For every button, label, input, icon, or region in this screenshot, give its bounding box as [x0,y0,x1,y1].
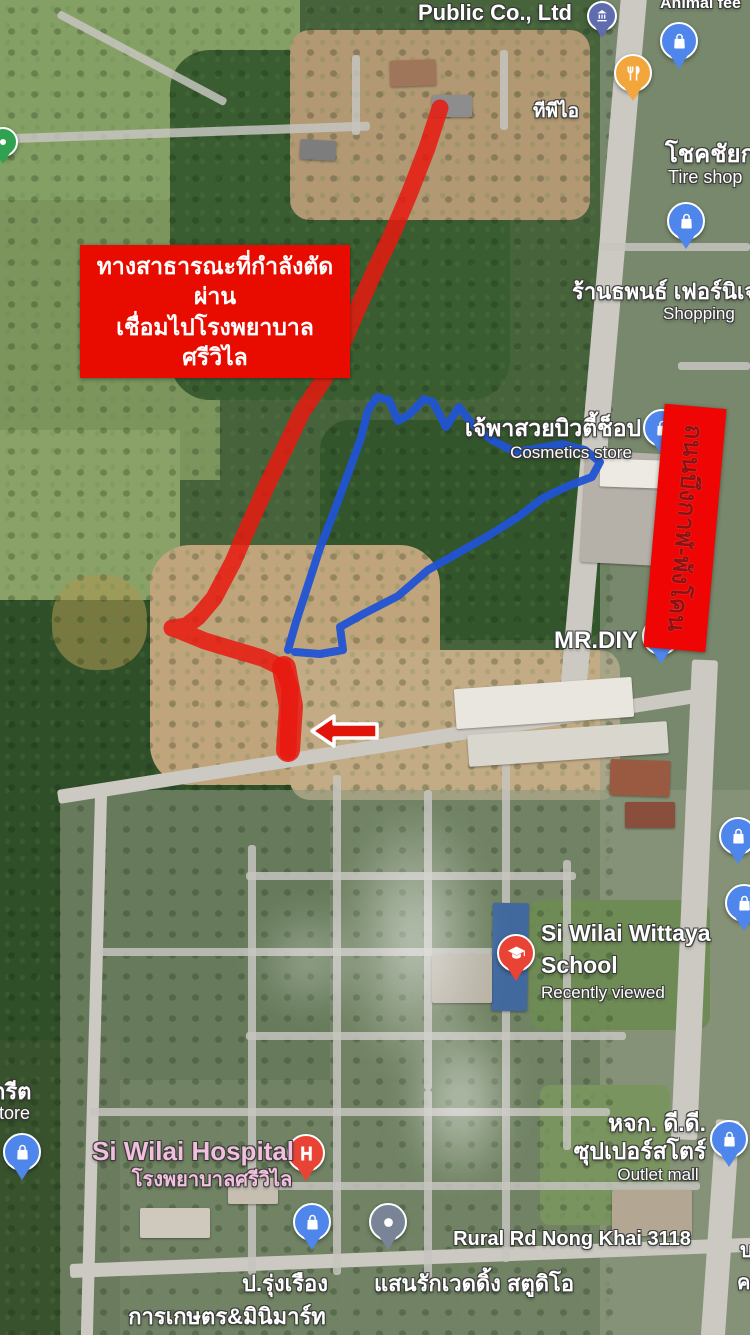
place-label-agri-thai1[interactable]: ป.รุ่งเรือง [242,1266,328,1301]
place-label-cosmetics-thai[interactable]: เจ้พาสวยบิวตี้ช็อป [465,411,641,447]
place-label-tpi[interactable]: ทีพีไอ [533,96,579,126]
red-roof [609,759,670,797]
clipped-label-fragment: ค [737,1266,750,1298]
village-roof [300,139,337,161]
shopping-bag-marker[interactable] [3,1133,41,1171]
shopping-bag-marker[interactable] [710,1120,748,1158]
street [248,845,256,1275]
place-label-hospital-thai[interactable]: โรงพยาบาลศรีวิไล [132,1163,293,1195]
place-label-mrdiy[interactable]: MR.DIY [554,627,638,655]
pond [52,575,147,670]
monument-marker[interactable] [587,1,617,31]
annotation-banner-line1: ทางสาธารณะที่กำลังตัดผ่าน [88,251,342,312]
place-label-school-status[interactable]: Recently viewed [541,983,665,1003]
shopping-bag-marker[interactable] [719,817,750,855]
place-label-cosmetics-en[interactable]: Cosmetics store [510,443,632,463]
road-name-banner-text: ถนนบึงกาฬ-พังโคน [656,423,714,634]
annotation-banner: ทางสาธารณะที่กำลังตัดผ่าน เชื่อมไปโรงพยา… [80,245,350,378]
street [352,55,360,135]
place-label-school-line1[interactable]: Si Wilai Wittaya [541,920,711,947]
place-label-agri-thai2[interactable]: การเกษตร&มินิมาร์ท [128,1299,326,1334]
place-label-tire-shop-en[interactable]: Tire shop [668,167,742,188]
school-marker[interactable] [497,934,535,972]
place-label-school-line2[interactable]: School [541,952,618,979]
place-label-wedding[interactable]: แสนรักเวดดิ้ง สตูดิโอ [374,1266,574,1301]
place-label-animal-feed[interactable]: Animal fee [660,0,741,13]
place-label-furniture-en[interactable]: Shopping [663,304,735,324]
annotation-banner-line2: เชื่อมไปโรงพยาบาลศรีวิไล [88,312,342,373]
street [90,1108,610,1116]
smoke-plume [400,1010,520,1190]
village-roof [390,59,437,87]
road-label-rural-3118[interactable]: Rural Rd Nong Khai 3118 [453,1228,691,1251]
shopping-bag-marker[interactable] [667,202,705,240]
restaurant-marker[interactable] [614,54,652,92]
hospital-building [140,1208,210,1238]
street [563,860,571,1150]
place-dot-marker[interactable] [369,1203,407,1241]
place-label-store-left-en[interactable]: store [0,1103,30,1124]
shopping-bag-marker[interactable] [293,1203,331,1241]
red-roof [625,802,675,828]
street [333,775,341,1275]
satellite-map[interactable]: Public Co., Ltd ทีพีไอ Animal fee โชคชัย… [0,0,750,1335]
street [500,50,508,130]
village-roof [432,95,472,117]
haze [250,900,370,1020]
place-label-public-co[interactable]: Public Co., Ltd [418,0,572,26]
shopping-bag-marker[interactable] [660,22,698,60]
street [600,243,750,251]
clipped-label-fragment: บ [740,1234,750,1266]
street [678,362,750,370]
place-label-outlet-en[interactable]: Outlet mall [617,1165,698,1185]
